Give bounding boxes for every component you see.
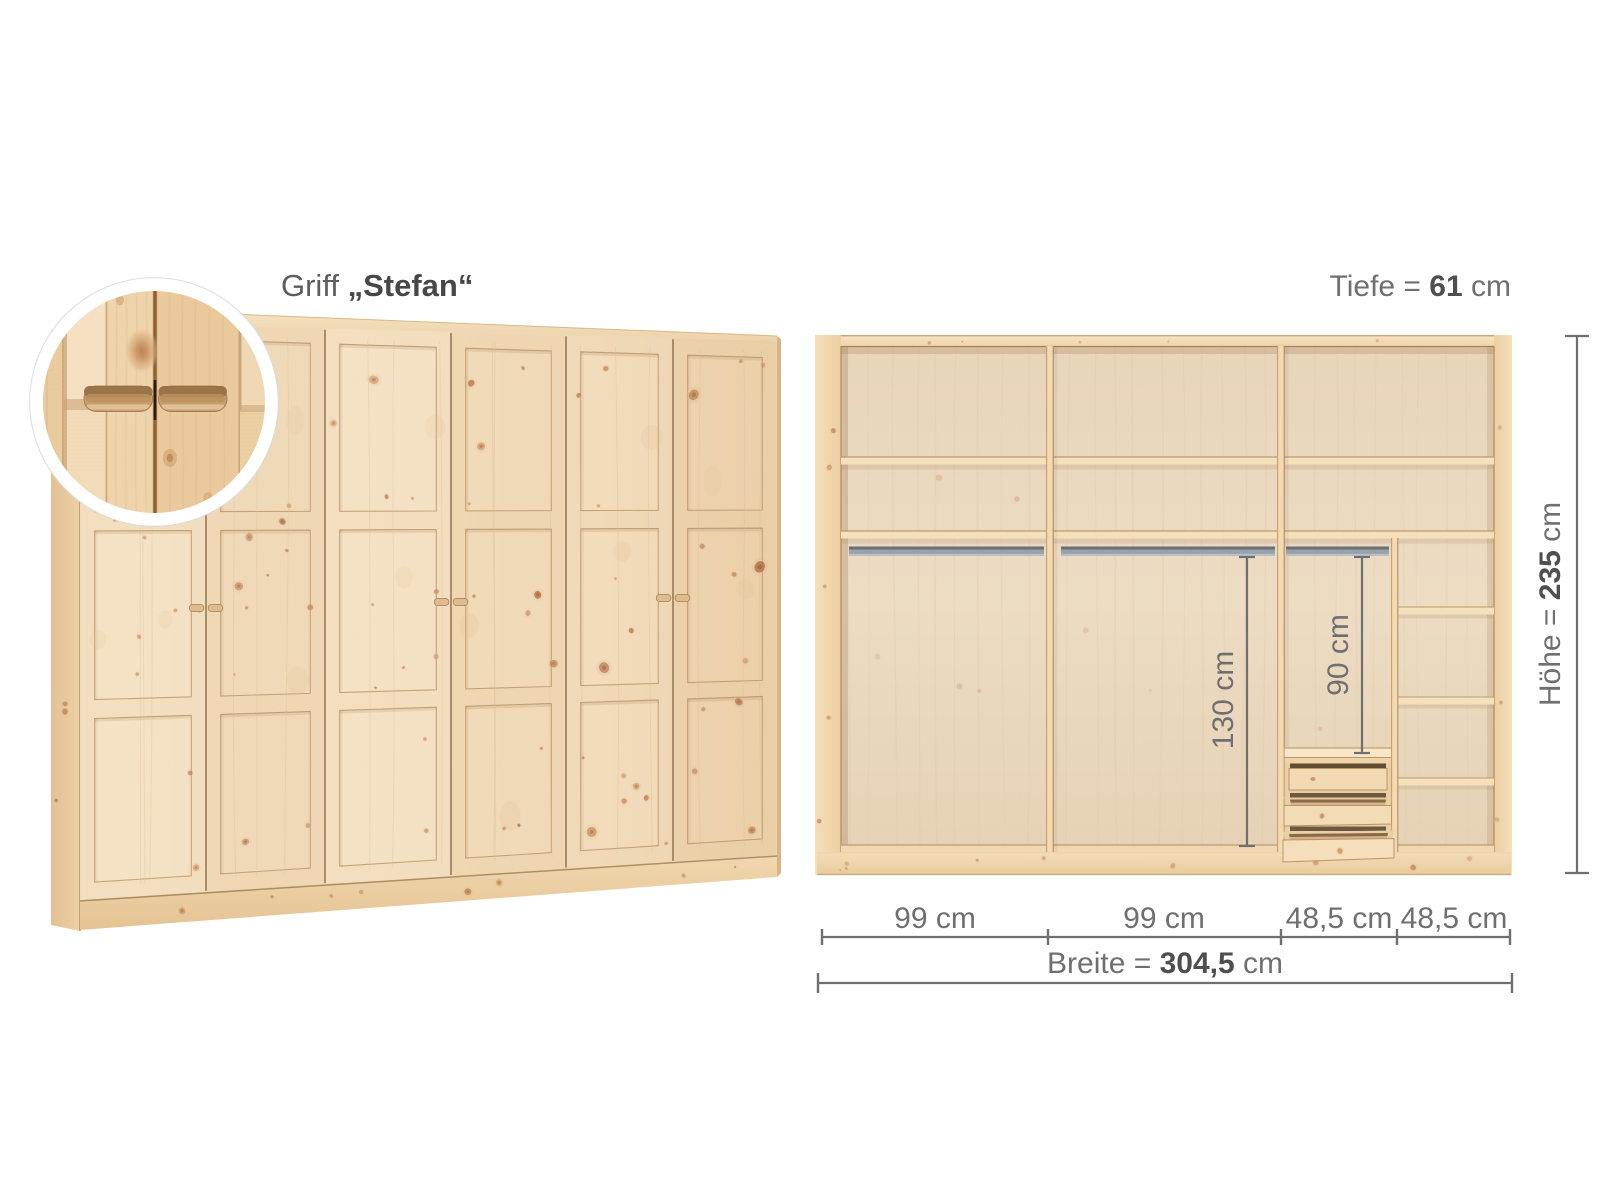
svg-text:Breite = 304,5 cm: Breite = 304,5 cm	[1047, 947, 1283, 980]
svg-text:Tiefe = 61 cm: Tiefe = 61 cm	[1330, 270, 1511, 303]
svg-text:99 cm: 99 cm	[894, 902, 976, 935]
svg-text:Höhe = 235 cm: Höhe = 235 cm	[1534, 502, 1567, 706]
svg-text:48,5 cm: 48,5 cm	[1401, 902, 1508, 935]
svg-text:99 cm: 99 cm	[1123, 902, 1205, 935]
svg-text:48,5 cm: 48,5 cm	[1286, 902, 1393, 935]
svg-text:90 cm: 90 cm	[1322, 614, 1355, 696]
svg-text:130 cm: 130 cm	[1207, 651, 1240, 749]
svg-text:Griff „Stefan“: Griff „Stefan“	[281, 268, 473, 303]
